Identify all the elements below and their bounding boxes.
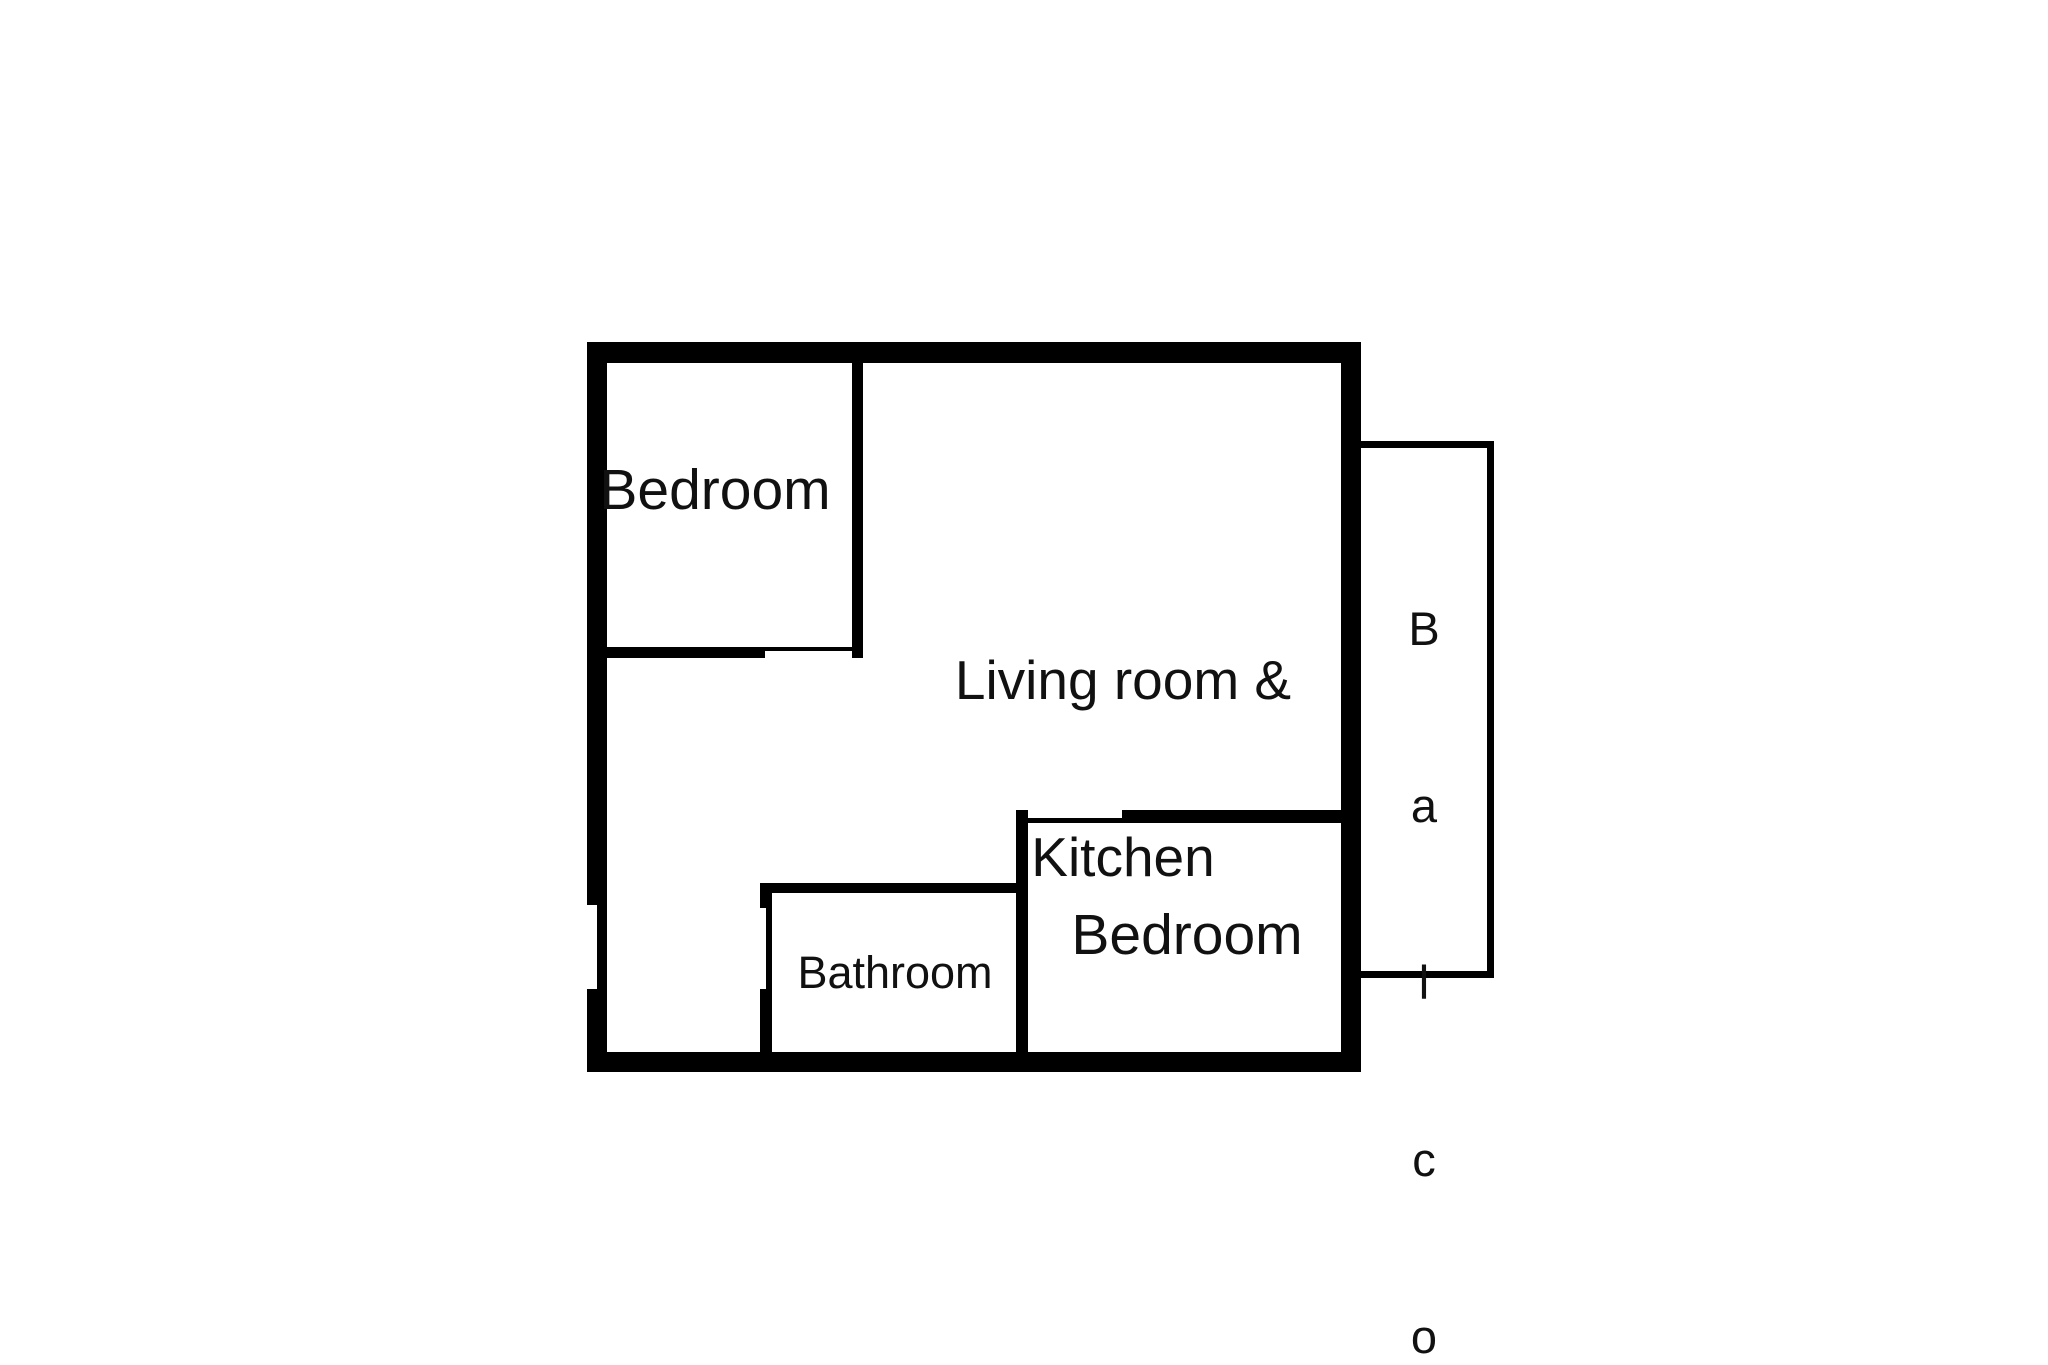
bedroom1-wall-bottom: [605, 647, 765, 658]
bathroom-wall-left-lower: [760, 989, 772, 1052]
entry-door-opening: [597, 905, 607, 989]
bedroom2-label: Bedroom: [987, 900, 1387, 970]
living-kitchen-label-line2: Kitchen: [923, 828, 1323, 887]
living-kitchen-label-line1: Living room &: [923, 651, 1323, 710]
floor-plan: Bedroom Living room & Kitchen Bathroom B…: [0, 0, 2048, 1365]
balcony-wall-top: [1361, 441, 1494, 448]
bathroom-wall-left-upper: [760, 883, 772, 908]
outer-wall-left-upper: [587, 342, 607, 905]
outer-wall-top: [587, 342, 1361, 363]
bedroom1-door-opening: [765, 647, 852, 651]
balcony-label: B a l c o n y: [1384, 481, 1464, 1365]
balcony-wall-right: [1487, 441, 1494, 978]
outer-wall-bottom: [587, 1052, 1361, 1072]
bedroom1-label: Bedroom: [515, 455, 915, 525]
